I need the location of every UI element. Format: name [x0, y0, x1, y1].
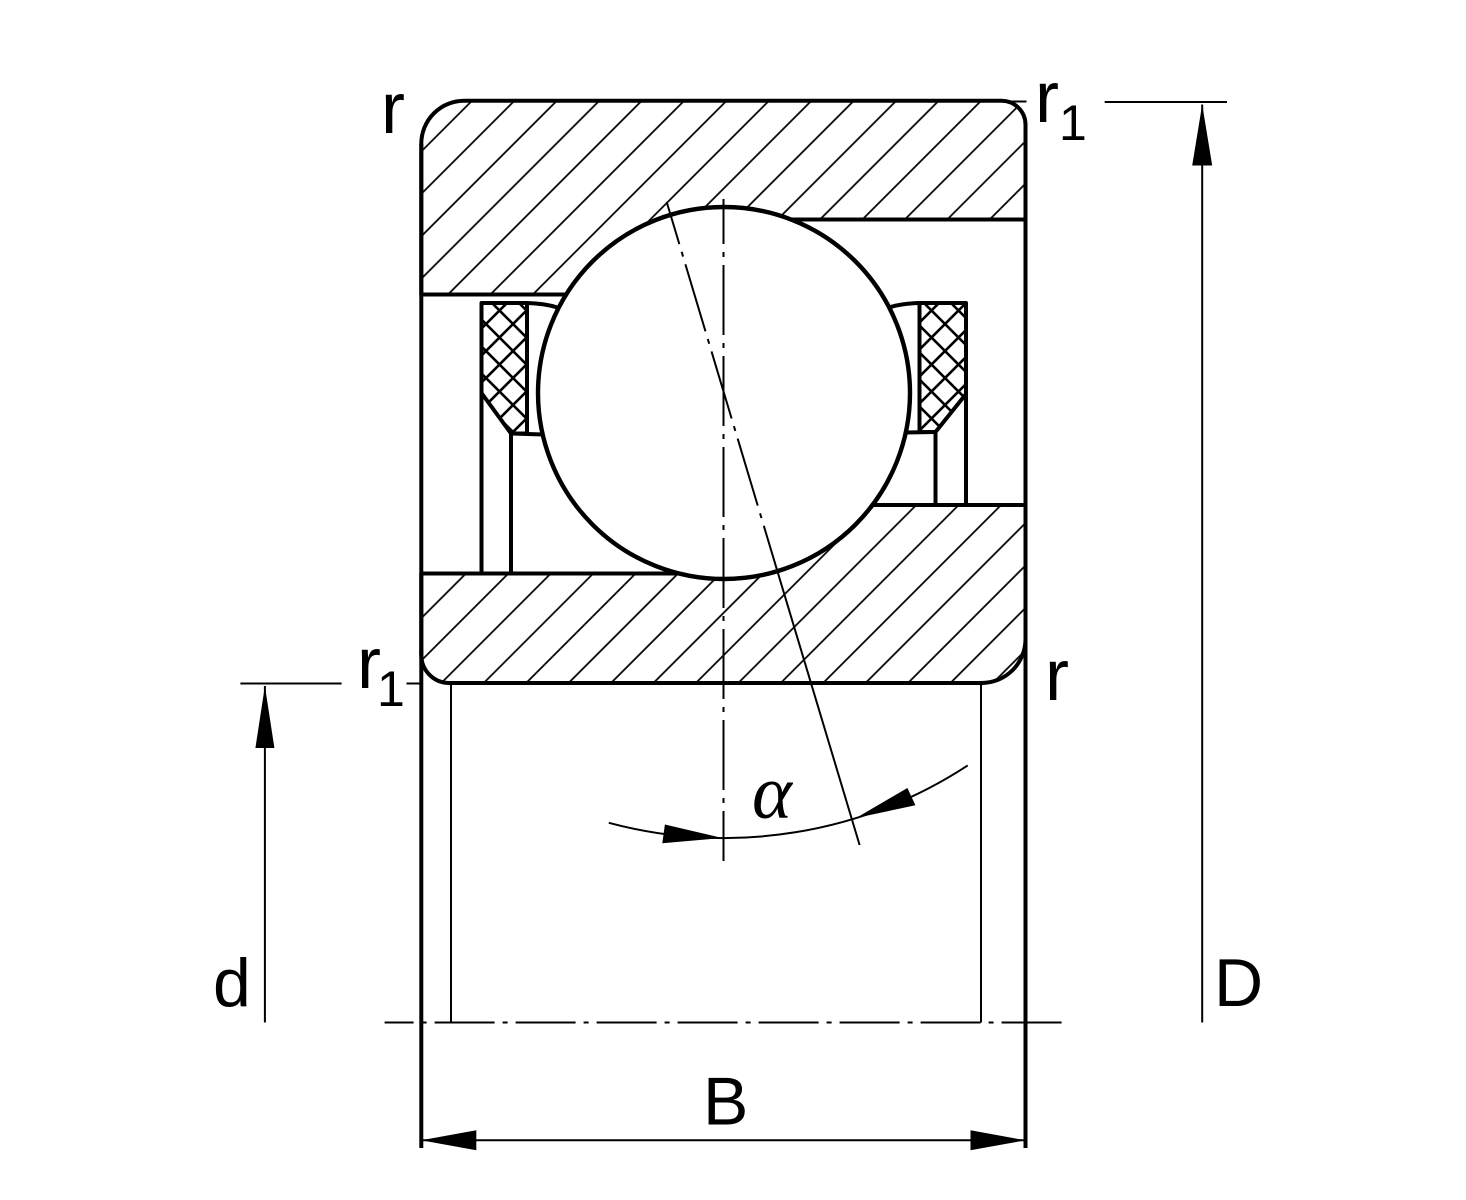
svg-text:α: α — [752, 751, 794, 835]
svg-text:r: r — [381, 69, 405, 149]
svg-text:r: r — [1035, 58, 1059, 138]
svg-text:D: D — [1214, 945, 1263, 1021]
svg-text:1: 1 — [1059, 95, 1087, 151]
svg-text:B: B — [703, 1064, 748, 1140]
svg-text:r: r — [1045, 636, 1069, 716]
svg-text:d: d — [213, 945, 251, 1021]
svg-text:1: 1 — [377, 661, 405, 717]
